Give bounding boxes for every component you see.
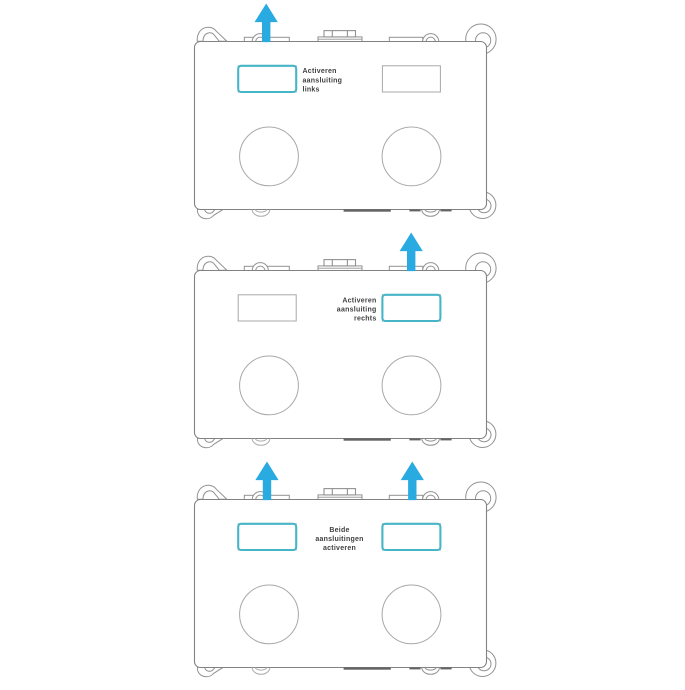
svg-text:Beide: Beide (329, 527, 349, 534)
svg-text:Activeren: Activeren (342, 297, 376, 304)
svg-text:activeren: activeren (323, 545, 356, 552)
svg-text:links: links (303, 87, 320, 94)
svg-text:aansluiting: aansluiting (337, 306, 377, 313)
svg-text:Activeren: Activeren (303, 68, 337, 75)
svg-text:aansluiting: aansluiting (303, 77, 343, 84)
svg-text:aansluitingen: aansluitingen (315, 536, 363, 543)
svg-text:rechts: rechts (354, 316, 377, 323)
